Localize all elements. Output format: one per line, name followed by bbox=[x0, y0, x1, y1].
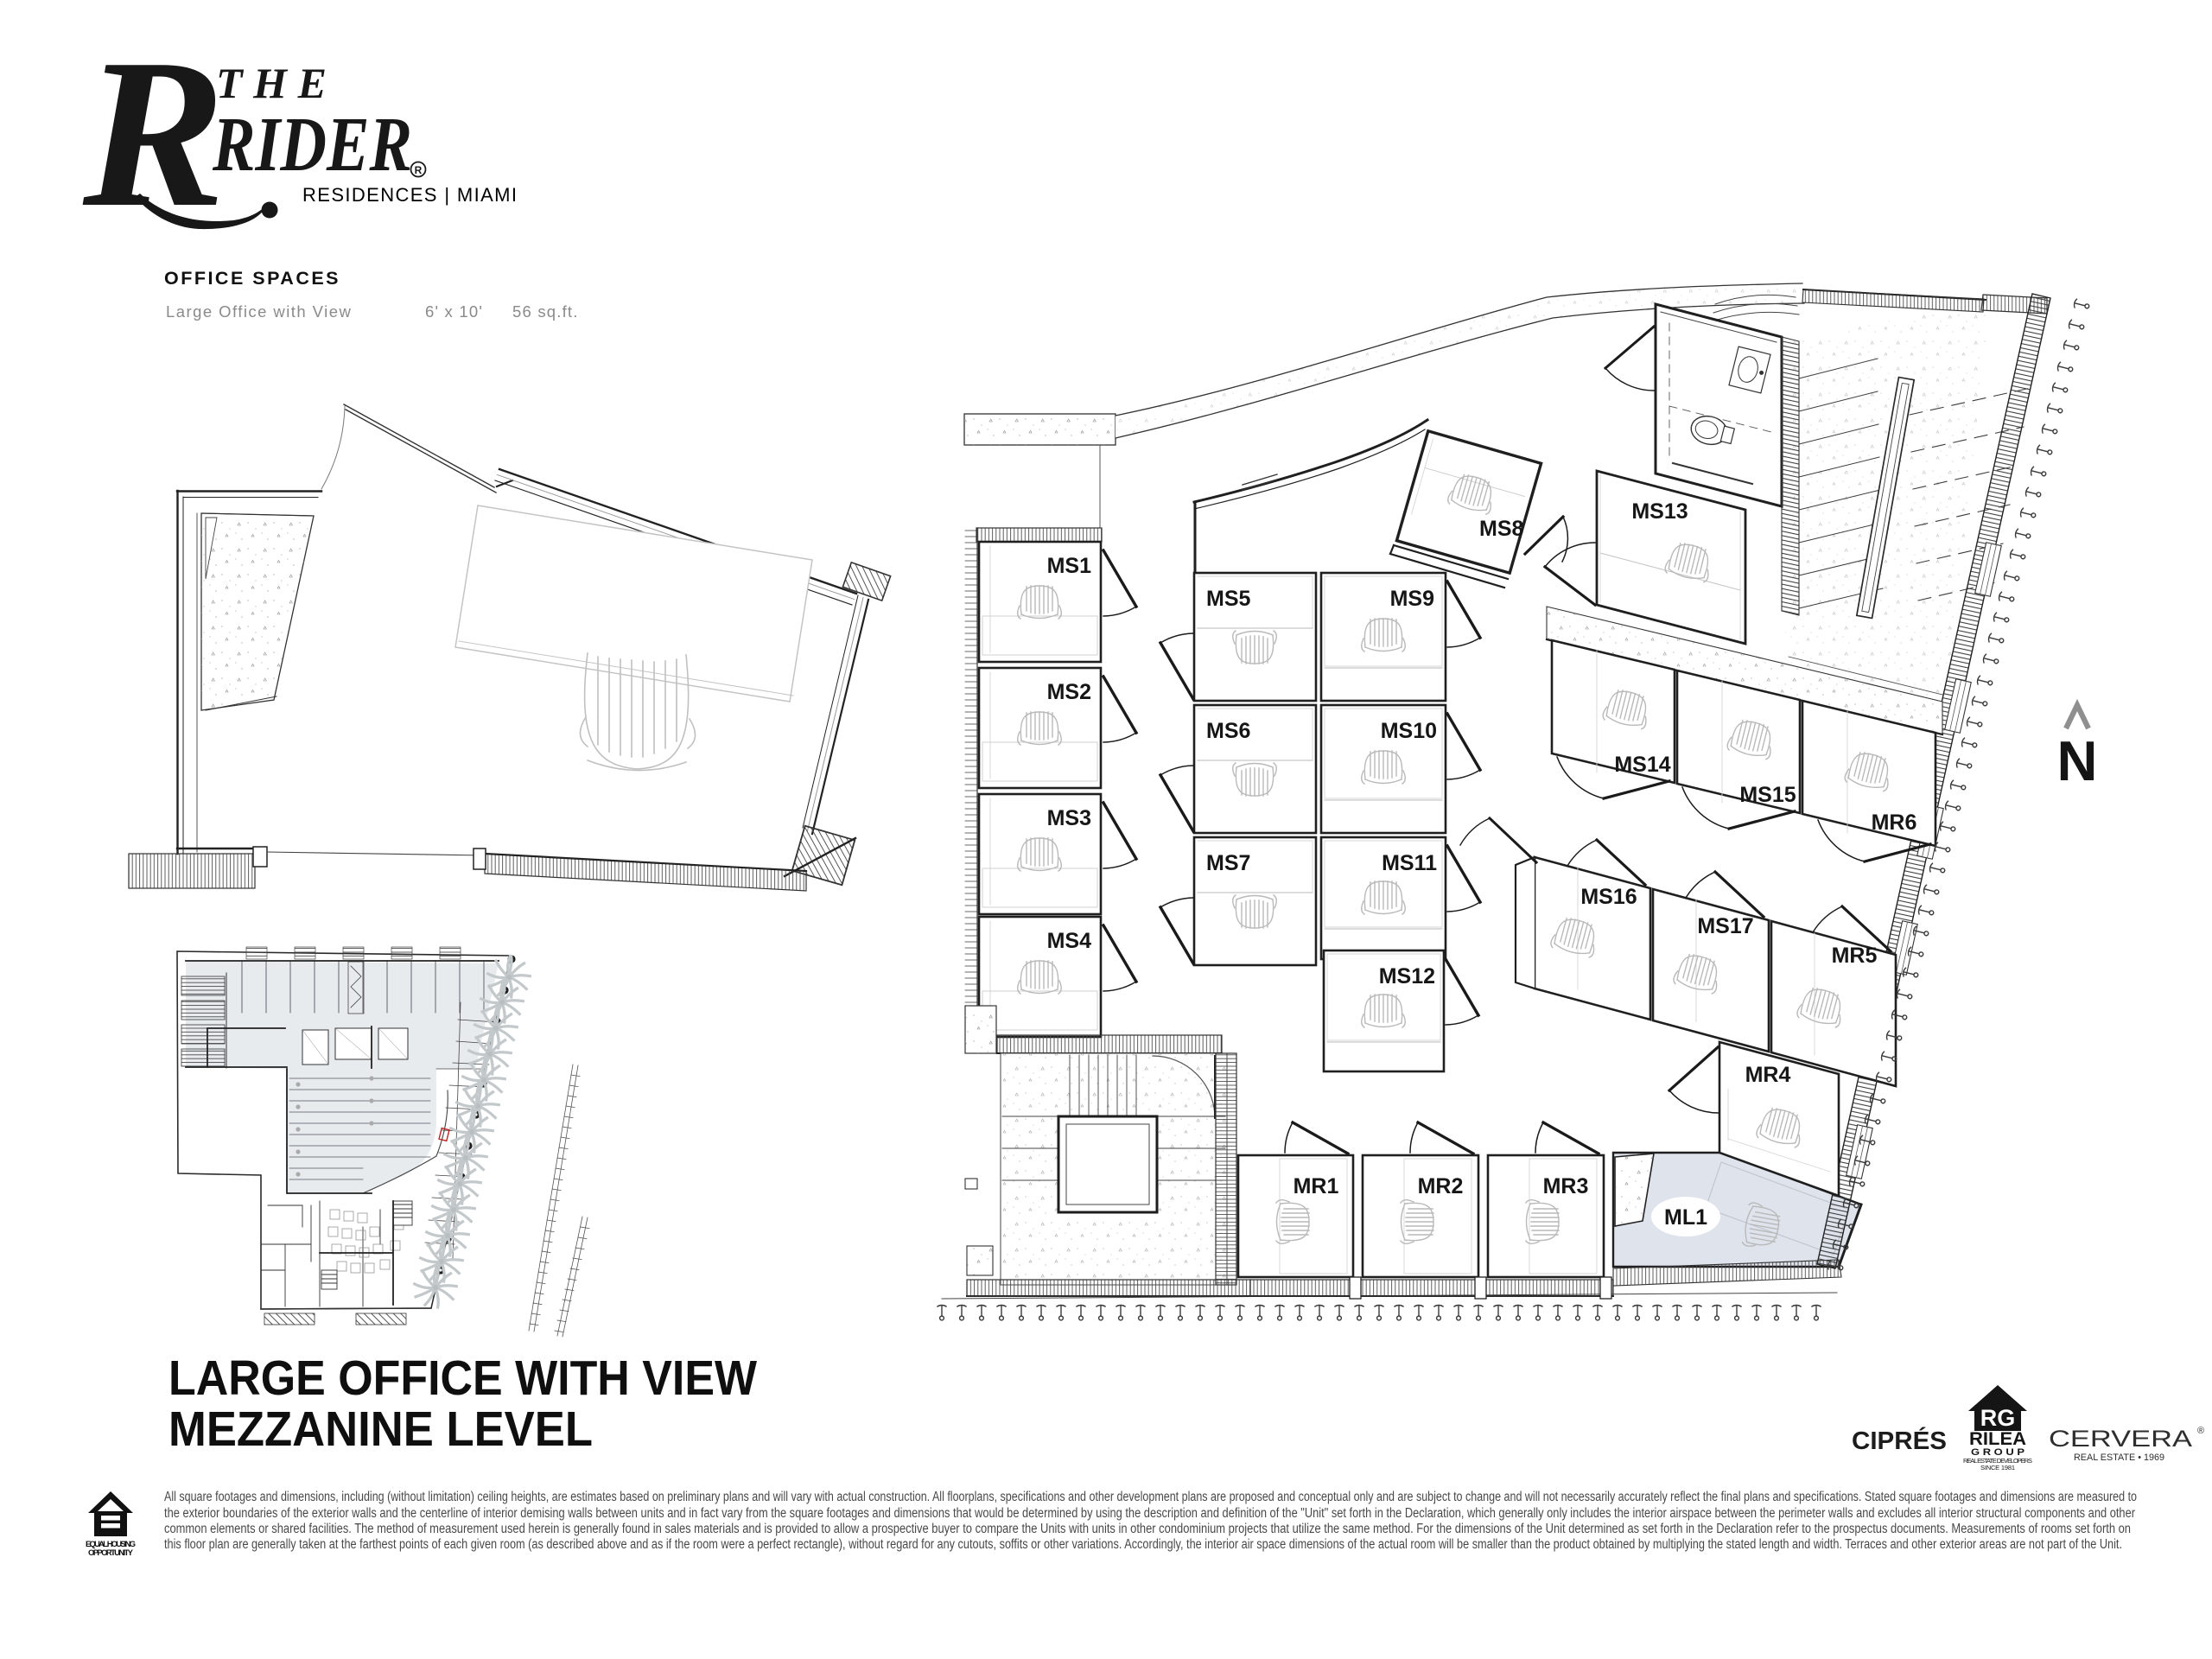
svg-text:MS17: MS17 bbox=[1697, 914, 1753, 938]
svg-text:MS13: MS13 bbox=[1631, 499, 1688, 524]
svg-text:REAL ESTATE • 1969: REAL ESTATE • 1969 bbox=[2074, 1452, 2164, 1463]
svg-text:N: N bbox=[2057, 729, 2098, 792]
svg-text:MS9: MS9 bbox=[1390, 587, 1434, 611]
svg-text:MS10: MS10 bbox=[1381, 719, 1437, 743]
svg-text:OPPORTUNITY: OPPORTUNITY bbox=[88, 1548, 134, 1558]
svg-text:RG: RG bbox=[1980, 1405, 2016, 1431]
svg-text:MR5: MR5 bbox=[1832, 944, 1878, 968]
svg-text:MS3: MS3 bbox=[1047, 806, 1091, 830]
svg-text:the exterior boundaries of the: the exterior boundaries of the exterior … bbox=[164, 1506, 2135, 1521]
svg-text:6' x 10': 6' x 10' bbox=[425, 302, 483, 321]
svg-text:MS6: MS6 bbox=[1206, 719, 1250, 743]
svg-text:MS4: MS4 bbox=[1047, 929, 1092, 953]
svg-text:MS1: MS1 bbox=[1047, 554, 1092, 578]
svg-text:MS16: MS16 bbox=[1580, 885, 1637, 909]
svg-text:MR1: MR1 bbox=[1294, 1174, 1339, 1198]
svg-text:MS14: MS14 bbox=[1614, 753, 1670, 777]
svg-text:this floor plan are generally: this floor plan are generally taken at t… bbox=[164, 1537, 2122, 1552]
svg-text:MS5: MS5 bbox=[1206, 587, 1251, 611]
svg-text:RIDER: RIDER bbox=[212, 102, 412, 188]
svg-text:common elements or shared faci: common elements or shared facilities. Th… bbox=[164, 1522, 2131, 1536]
svg-text:MS7: MS7 bbox=[1206, 851, 1250, 875]
svg-text:MR2: MR2 bbox=[1418, 1174, 1464, 1198]
svg-text:MR3: MR3 bbox=[1543, 1174, 1589, 1198]
svg-text:THE: THE bbox=[216, 59, 327, 107]
svg-text:MR6: MR6 bbox=[1872, 810, 1917, 835]
svg-text:MR4: MR4 bbox=[1745, 1063, 1791, 1087]
svg-text:MS15: MS15 bbox=[1739, 783, 1796, 807]
svg-text:R: R bbox=[415, 164, 423, 176]
svg-text:All square footages and dimens: All square footages and dimensions, incl… bbox=[164, 1490, 2137, 1504]
svg-text:MEZZANINE LEVEL: MEZZANINE LEVEL bbox=[168, 1402, 593, 1457]
svg-text:MS2: MS2 bbox=[1047, 680, 1091, 704]
svg-text:CERVERA: CERVERA bbox=[2049, 1426, 2192, 1452]
svg-text:®: ® bbox=[2197, 1426, 2204, 1436]
svg-text:SINCE 1981: SINCE 1981 bbox=[1980, 1464, 2015, 1471]
svg-text:56 sq.ft.: 56 sq.ft. bbox=[512, 302, 579, 321]
svg-text:ML1: ML1 bbox=[1664, 1205, 1707, 1230]
svg-text:Large Office with View: Large Office with View bbox=[166, 302, 352, 321]
svg-text:RILEA: RILEA bbox=[1969, 1429, 2026, 1449]
svg-text:LARGE OFFICE WITH VIEW: LARGE OFFICE WITH VIEW bbox=[168, 1351, 757, 1406]
svg-text:CIPRÉS: CIPRÉS bbox=[1852, 1426, 1947, 1455]
svg-text:MS11: MS11 bbox=[1382, 851, 1437, 875]
svg-text:OFFICE SPACES: OFFICE SPACES bbox=[164, 268, 340, 289]
svg-text:RESIDENCES | MIAMI: RESIDENCES | MIAMI bbox=[302, 184, 518, 206]
svg-text:R: R bbox=[82, 16, 226, 251]
svg-text:MS8: MS8 bbox=[1479, 517, 1524, 541]
svg-text:MS12: MS12 bbox=[1379, 964, 1435, 988]
